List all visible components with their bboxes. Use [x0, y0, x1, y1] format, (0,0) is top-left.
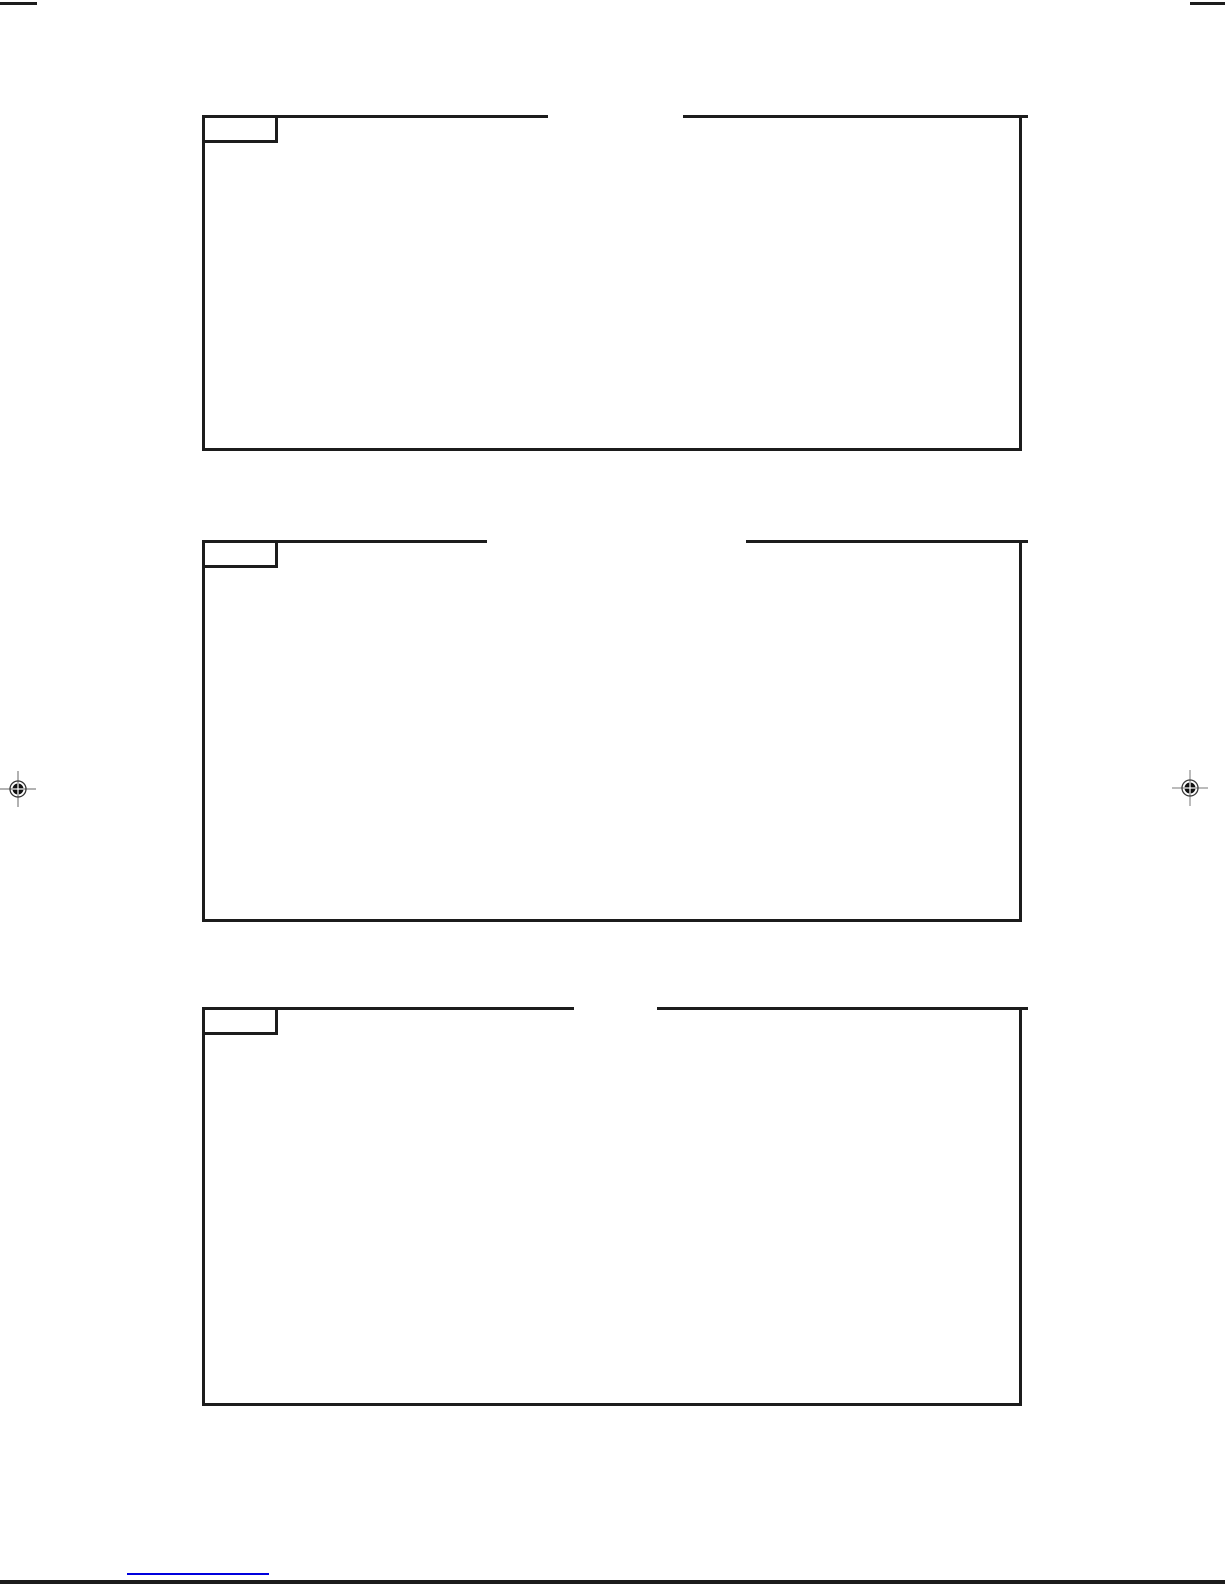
- figure-box-3-top-border-right-segment: [657, 1007, 1028, 1010]
- figure-box-1: [202, 115, 1022, 451]
- figure-box-1-label-tab: [202, 115, 278, 143]
- crop-mark-top-left: [0, 2, 37, 5]
- figure-box-2-top-border-right-segment: [746, 540, 1028, 543]
- figure-box-2: [202, 540, 1022, 922]
- crop-mark-top-right: [1190, 2, 1225, 5]
- figure-box-3: [202, 1007, 1022, 1406]
- registration-mark-right-icon: [1171, 769, 1209, 807]
- figure-box-2-label-tab: [202, 540, 278, 568]
- page-bottom-rule: [0, 1580, 1225, 1584]
- figure-box-3-label-tab: [202, 1007, 278, 1035]
- registration-mark-left-icon: [0, 770, 37, 808]
- figure-box-1-top-border-right-segment: [683, 115, 1028, 118]
- hyperlink-underline[interactable]: [127, 1573, 269, 1575]
- document-page: [0, 0, 1225, 1585]
